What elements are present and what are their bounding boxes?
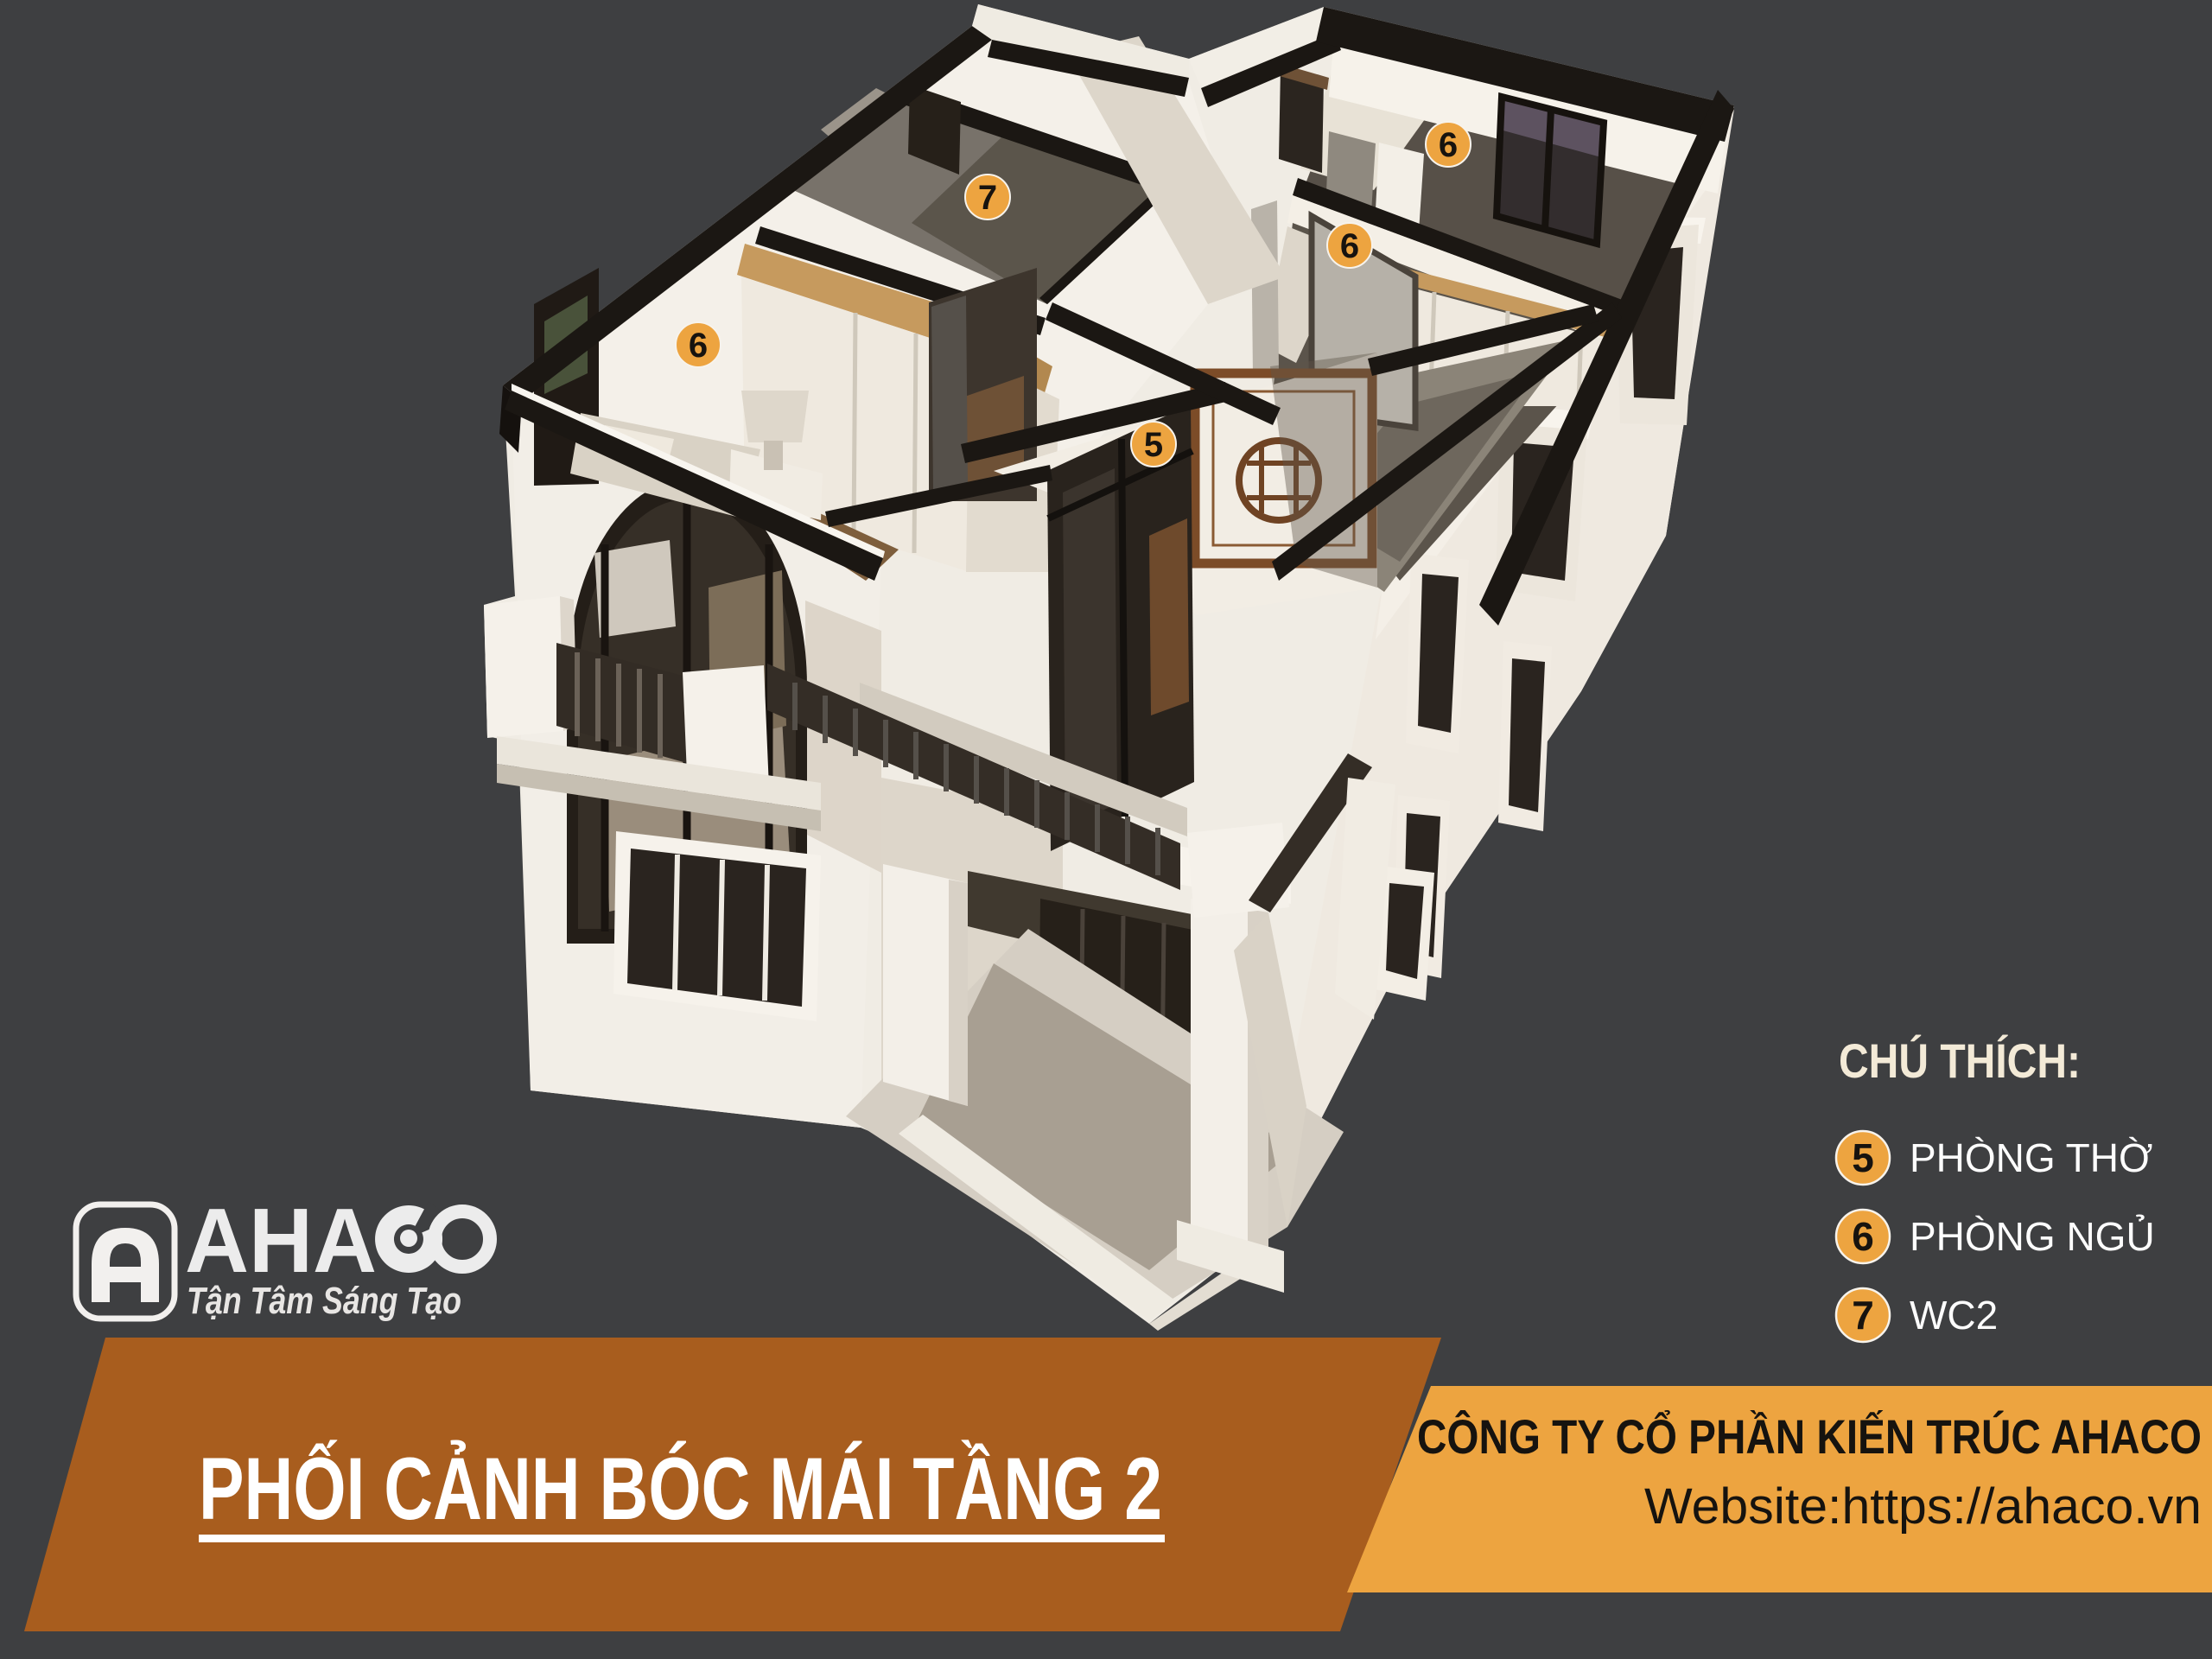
svg-text:6: 6 — [689, 327, 708, 365]
svg-text:WC2: WC2 — [1910, 1293, 1998, 1338]
svg-text:PHÒNG NGỦ: PHÒNG NGỦ — [1910, 1214, 2155, 1259]
svg-text:Website:https://ahaco.vn: Website:https://ahaco.vn — [1644, 1478, 2202, 1535]
svg-text:6: 6 — [1439, 126, 1458, 164]
svg-text:5: 5 — [1144, 426, 1163, 464]
svg-text:6: 6 — [1852, 1214, 1874, 1259]
svg-text:CÔNG TY CỔ PHẦN KIẾN TRÚC AHAC: CÔNG TY CỔ PHẦN KIẾN TRÚC AHACO — [1417, 1409, 2202, 1464]
svg-text:AHA: AHA — [185, 1190, 377, 1292]
svg-text:PHỐI CẢNH BÓC MÁI TẦNG 2: PHỐI CẢNH BÓC MÁI TẦNG 2 — [199, 1440, 1162, 1538]
svg-text:6: 6 — [1340, 227, 1359, 265]
svg-text:5: 5 — [1852, 1135, 1874, 1180]
svg-text:7: 7 — [978, 179, 997, 217]
svg-text:CHÚ THÍCH:: CHÚ THÍCH: — [1839, 1033, 2081, 1088]
svg-text:Tận Tâm Sáng Tạo: Tận Tâm Sáng Tạo — [187, 1280, 461, 1322]
svg-text:7: 7 — [1852, 1293, 1874, 1338]
svg-text:PHÒNG THỜ: PHÒNG THỜ — [1910, 1135, 2152, 1180]
